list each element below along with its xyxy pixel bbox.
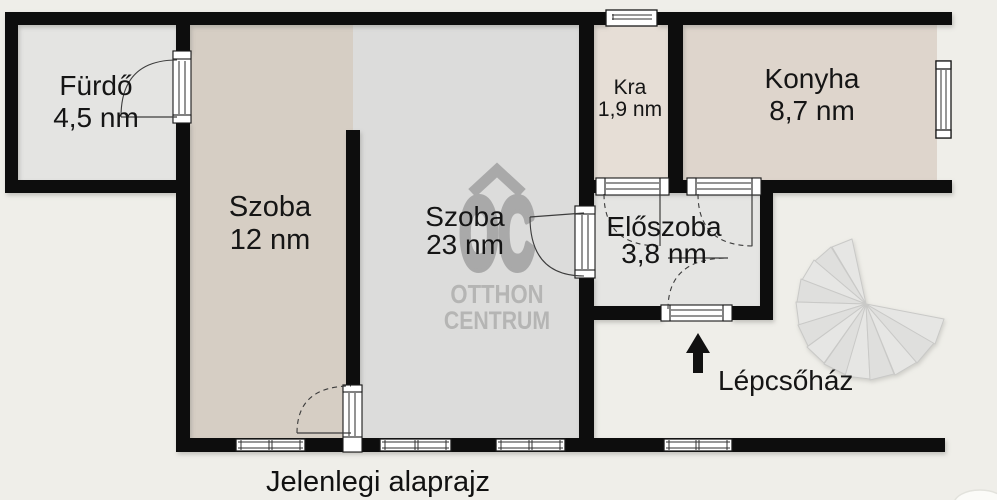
wall-outer-left <box>5 12 18 193</box>
label-furdo: Fürdő <box>59 70 132 101</box>
label-szoba23: Szoba <box>425 201 505 232</box>
door-szoba12-partition <box>343 385 362 452</box>
door-konyha <box>687 178 761 195</box>
window-bottom-2 <box>380 439 451 451</box>
window-bottom-3 <box>496 439 565 451</box>
window-kra-top <box>606 10 657 26</box>
door-furdo <box>173 51 191 123</box>
wall-furdo-bottom <box>5 180 190 193</box>
wall-furdo-right-upper <box>176 25 190 52</box>
door-entrance <box>661 305 732 321</box>
plan-caption: Jelenlegi alaprajz <box>266 466 490 498</box>
wall-partition-szoba12-23 <box>346 130 360 386</box>
label-staircase: Lépcsőház <box>718 365 853 396</box>
logo-line1: OTTHON <box>450 280 543 309</box>
label-konyha: Konyha <box>765 63 860 94</box>
wall-top-left <box>5 12 607 25</box>
wall-eloszoba-bottom-right <box>731 306 773 320</box>
floorplan-canvas: OC OTTHON CENTRUM <box>0 0 997 500</box>
area-szoba23: 23 nm <box>426 229 504 260</box>
label-szoba12: Szoba <box>229 191 312 223</box>
door-kra <box>596 178 669 195</box>
area-konyha: 8,7 nm <box>769 95 855 126</box>
area-kra: 1,9 nm <box>598 98 662 121</box>
wall-furdo-right-lower <box>176 122 190 181</box>
area-eloszoba: 3,8 nm <box>621 238 707 269</box>
wall-szoba23-right-upper <box>579 25 594 208</box>
area-szoba12: 12 nm <box>230 224 311 256</box>
wall-szoba12-left <box>176 180 190 452</box>
window-bottom-4 <box>664 439 732 451</box>
wall-kra-right <box>668 25 683 181</box>
logo-line2: CENTRUM <box>444 306 550 334</box>
door-szoba23-eloszoba <box>575 206 595 278</box>
wall-top-right <box>657 12 952 25</box>
wall-eloszoba-bottom-left <box>579 306 662 320</box>
wall-szoba23-right-lower <box>579 276 594 452</box>
wall-eloszoba-right <box>760 180 773 320</box>
window-konyha-right <box>936 61 951 138</box>
window-bottom-1 <box>236 439 305 451</box>
label-kra: Kra <box>614 76 647 99</box>
area-furdo: 4,5 nm <box>53 102 139 133</box>
